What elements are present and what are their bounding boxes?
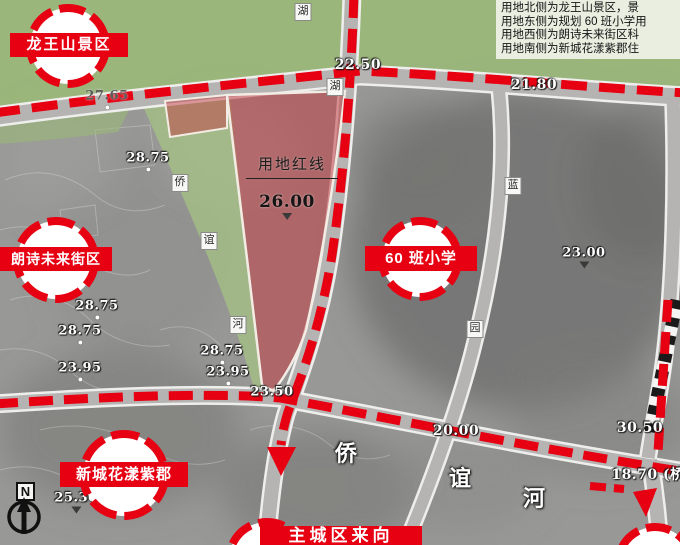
north-label: N [21,484,30,499]
elevation-label: 23.95 [58,361,101,382]
badge-ring [613,522,680,545]
elevation-label: 28.75 [58,324,101,345]
elevation-label: 22.50 [335,57,381,73]
street-name-box: 蓝 [505,177,522,195]
elevation-label: 21.80 [511,77,557,93]
elevation-label: 28.75 [126,151,169,172]
badge-label: 朗诗未来街区 [0,247,112,271]
street-name-box: 河 [230,316,247,334]
river-name-label: 河 [523,481,545,513]
elevation-label: 26.00 [259,192,315,220]
street-name-box: 谊 [201,232,218,250]
badge-60-class-school: 60 班小学 [365,216,481,304]
elevation-label: 30.50 [617,420,663,436]
elevation-label: 28.75 [200,344,243,365]
river-name-label: 侨 [335,436,357,468]
badge-label: 新城花漾紫郡 [60,462,188,487]
badge-langshi-future-block: 朗诗未来街区 [0,216,116,306]
info-line: 用地南侧为新城花漾紫郡住 [501,43,680,57]
street-name-box: 园 [467,320,484,338]
info-line: 用地西侧为朗诗未来街区科 [501,29,680,43]
badge-longwangshan: 龙王山景区 [10,3,132,92]
badge-xincheng-residence: 新城花漾紫郡 [60,429,190,523]
elevation-label: 23.95 [206,365,249,386]
site-redline-label: 用地红线 [246,153,338,179]
badge-label: 主城区来向 [260,526,422,545]
badge-main-city-direction: 主城区来向 [224,517,424,545]
elevation-label: 23.50 [250,385,293,400]
elevation-label: 23.00 [562,246,605,269]
street-name-box: 湖 [327,78,344,96]
river-name-label: 谊 [449,461,471,493]
planning-map: N 用地北侧为龙王山景区，景 用地东侧为规划 60 班小学用 用地西侧为朗诗未来… [0,0,680,545]
street-name-box: 湖 [295,3,312,21]
elevation-label: 18.70 (桥 [611,464,680,484]
elevation-label: 20.00 [433,423,479,439]
badge-partial-southeast [613,522,680,545]
badge-label: 龙王山景区 [10,33,128,57]
street-name-box: 侨 [172,174,189,192]
badge-label: 60 班小学 [365,246,477,271]
info-box: 用地北侧为龙王山景区，景 用地东侧为规划 60 班小学用 用地西侧为朗诗未来街区… [496,0,680,59]
info-line: 用地北侧为龙王山景区，景 [501,2,680,16]
info-line: 用地东侧为规划 60 班小学用 [501,16,680,30]
